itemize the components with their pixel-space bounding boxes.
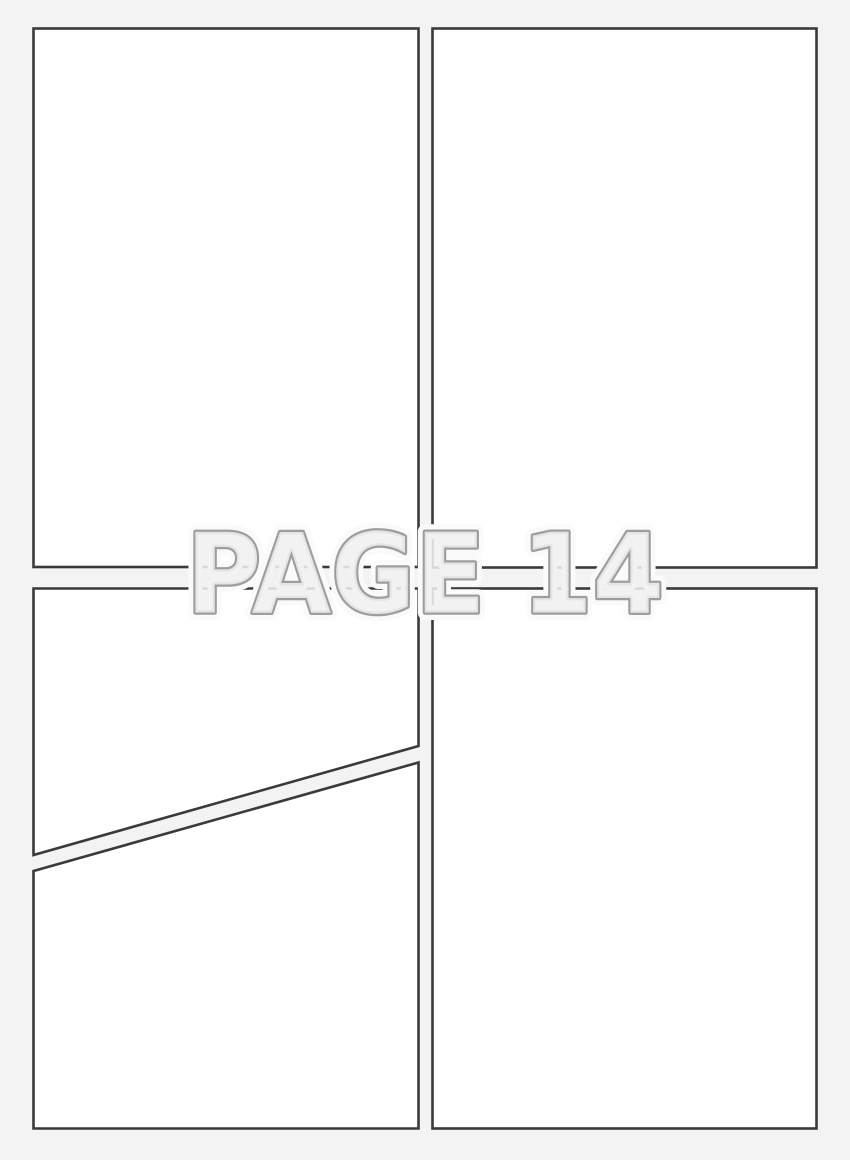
panel-bottom-right	[433, 589, 817, 1129]
panel-top-left	[34, 29, 419, 568]
watermark-text: PAGE 14	[186, 511, 664, 640]
panel-top-right	[433, 29, 817, 568]
comic-template-page: PAGE 14 PAGE 14	[0, 0, 850, 1160]
comic-page-canvas: PAGE 14 PAGE 14	[0, 0, 850, 1160]
page-number-watermark: PAGE 14 PAGE 14	[186, 511, 664, 640]
